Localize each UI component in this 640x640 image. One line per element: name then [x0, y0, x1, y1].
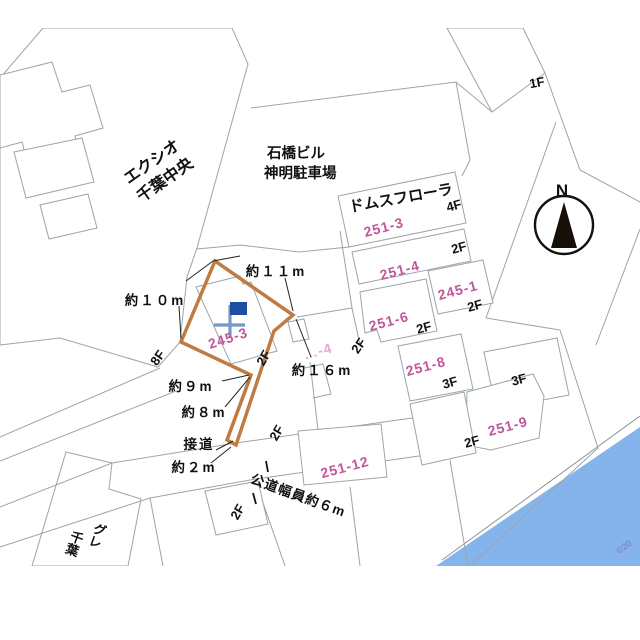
road-upper-left-edges — [0, 368, 176, 461]
frontage-width: 約２m — [171, 459, 216, 475]
compass-n-label: N — [556, 181, 568, 200]
ishibashi-label-line1: 石橋ビル — [266, 144, 325, 162]
compass: N — [535, 181, 593, 254]
map-canvas: N エクシオ 千葉中央 石橋ビル 神明駐車場 ドムスフローラ グレ 千葉 1F … — [0, 0, 640, 640]
gre-label-line1: グレ — [85, 520, 108, 550]
floor-label-1f: 1F — [528, 74, 546, 91]
building-cutout — [40, 194, 97, 239]
public-road-edges — [0, 410, 470, 547]
measure-left: 約９m — [168, 378, 213, 394]
measure-right: 約１６m — [292, 362, 353, 378]
ishibashi-label-line2: 神明駐車場 — [264, 164, 337, 182]
parcel-2f-bottom — [410, 392, 476, 465]
floor-label-2f-subject: 2F — [253, 347, 274, 368]
floor-label-2f: 2F — [227, 501, 248, 522]
bottom-left-lines — [150, 481, 285, 566]
gre-label-line2: 千葉 — [62, 528, 86, 560]
measure-top-right: 約１１m — [246, 263, 307, 279]
corner-building-1f — [447, 28, 545, 112]
subject-parcel-number: 245-3 — [206, 324, 250, 352]
gre-chiba-building — [32, 452, 141, 566]
measure-lower-left: 約８m — [181, 404, 226, 420]
frontage-label: 接道 — [184, 436, 215, 452]
location-map: N エクシオ 千葉中央 石橋ビル 神明駐車場 ドムスフローラ グレ 千葉 1F … — [0, 0, 640, 640]
measure-top-left: 約１０m — [125, 292, 186, 308]
floor-label-2f: 2F — [348, 335, 369, 356]
parcel-number-partial: …-4 — [301, 339, 334, 362]
measurement-leader-lines — [179, 256, 311, 463]
floor-label-2f: 2F — [266, 422, 287, 443]
